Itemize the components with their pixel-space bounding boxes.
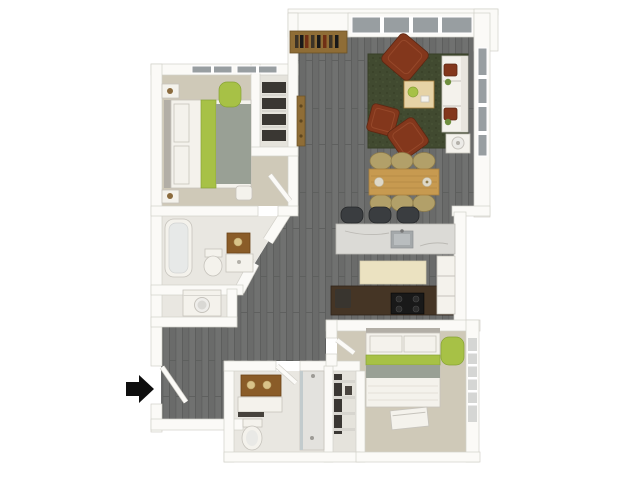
bedroom1-bottom-wall-b: [278, 206, 298, 216]
bathroom2-top-wall-a: [224, 361, 276, 371]
bar-stool: [369, 207, 391, 223]
bed-accent-runner: [201, 100, 216, 188]
vanity1: [226, 233, 253, 272]
console-bookshelf: [290, 31, 347, 53]
pouf: [236, 186, 252, 200]
pillow: [174, 146, 189, 184]
place-setting: [375, 178, 384, 187]
dining-table: [369, 169, 439, 195]
sofa: [442, 56, 468, 132]
bedroom2-left-wall-b: [326, 354, 337, 366]
dining-chair: [413, 153, 435, 170]
dining-area: [369, 153, 439, 212]
coffee-table: [404, 81, 434, 108]
sofa-pillow: [444, 108, 457, 120]
toilet2: [242, 419, 262, 450]
laundry-bottom-wall: [151, 317, 237, 327]
side-table-with-lamp: [446, 134, 470, 153]
closet1-left-wall: [251, 64, 260, 156]
accent-chair: [441, 337, 464, 365]
bed2: [366, 328, 440, 407]
shower-head: [311, 374, 315, 378]
sofa-pillow: [444, 64, 457, 76]
pillow: [370, 336, 402, 352]
accent-chair: [219, 82, 241, 107]
bedroom2-bottom-wall: [356, 452, 480, 462]
bathtub: [165, 219, 192, 277]
floorplan-image: [0, 0, 640, 480]
bedroom2-left-wall-a: [326, 320, 337, 338]
pillow: [174, 104, 189, 142]
living-right-window-glass: [478, 48, 487, 156]
plant: [445, 79, 451, 85]
dining-chair: [391, 153, 413, 170]
kitchen-island: [336, 224, 455, 254]
bed-duvet: [216, 104, 251, 184]
walk-in-shower: [300, 371, 324, 450]
closet1-shelving: [262, 82, 286, 141]
range-cooktop: [391, 293, 424, 314]
bedroom2-windows: [468, 338, 477, 422]
bench: [390, 407, 429, 430]
bar-stool: [341, 207, 363, 223]
bar-stool: [397, 207, 419, 223]
bed-duvet: [366, 365, 440, 378]
bedroom1-bottom-wall-a: [151, 206, 258, 216]
bed1: [164, 100, 251, 188]
kitchen-tile-mat: [360, 261, 426, 284]
floorplan-canvas: [0, 0, 640, 480]
table-lamp: [167, 88, 173, 94]
bed-accent-runner: [366, 355, 440, 365]
trash-bin: [335, 289, 351, 308]
plant: [445, 119, 451, 125]
dining-chair: [370, 153, 392, 170]
washer: [183, 290, 221, 316]
closet-item: [345, 386, 352, 395]
shower-drain: [310, 436, 314, 440]
vanity2: [238, 375, 282, 417]
tall-cabinet: [437, 256, 455, 314]
pillow: [404, 336, 436, 352]
toilet1: [204, 249, 222, 276]
closet2-right-wall: [356, 371, 365, 462]
floor-lamp: [297, 96, 305, 146]
kitchen-right-wall: [454, 212, 466, 322]
bathroom2-bottom-wall: [224, 452, 360, 462]
living-window-glass: [352, 17, 472, 33]
table-lamp: [167, 193, 173, 199]
bathroom2-mid-wall: [324, 366, 333, 462]
closet1-bottom-wall: [251, 147, 298, 156]
cooktop-counter: [331, 286, 453, 315]
shower-glass: [300, 371, 303, 450]
laundry-closet: [183, 290, 221, 316]
bathroom2-left-wall: [224, 361, 234, 462]
